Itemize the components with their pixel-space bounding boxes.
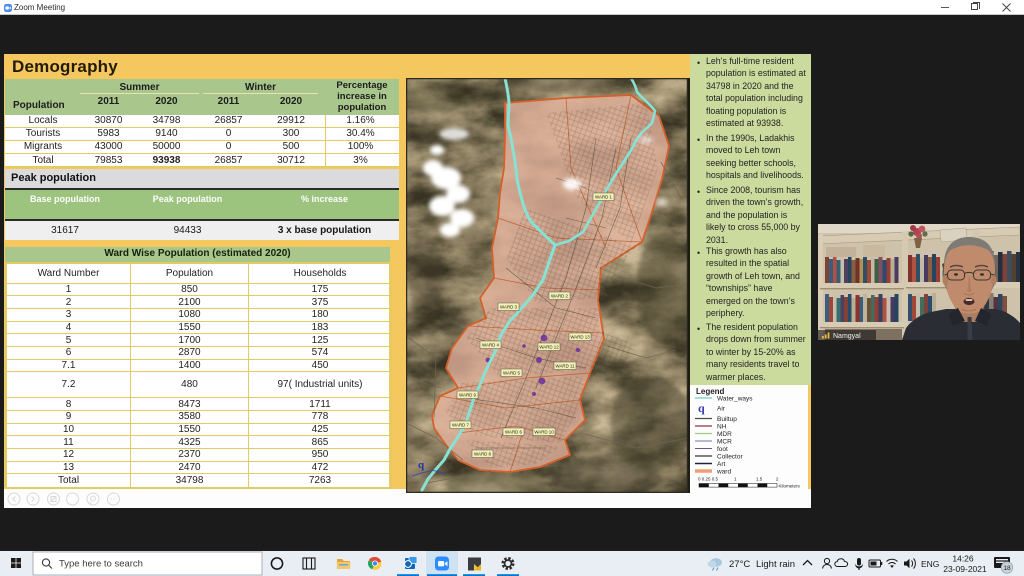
svg-text:2: 2 <box>776 477 779 482</box>
svg-text:Air: Air <box>717 406 726 413</box>
svg-text:MDR: MDR <box>717 431 732 438</box>
svg-text:WARD 2: WARD 2 <box>551 294 568 299</box>
svg-text:WARD 3: WARD 3 <box>500 305 517 310</box>
svg-text:WARD 8: WARD 8 <box>474 452 491 457</box>
svg-text:WARD 5: WARD 5 <box>503 371 520 376</box>
svg-text:ENG: ENG <box>921 559 939 569</box>
svg-text:WARD 9: WARD 9 <box>459 393 476 398</box>
svg-text:Type here to search: Type here to search <box>59 559 143 570</box>
svg-text:q: q <box>698 401 705 415</box>
svg-text:Builtup: Builtup <box>717 416 737 423</box>
svg-text:27°C: 27°C <box>729 559 750 570</box>
svg-text:MCR: MCR <box>717 439 732 446</box>
svg-text:WARD 1: WARD 1 <box>595 195 612 200</box>
svg-text:WARD 10: WARD 10 <box>534 430 554 435</box>
svg-text:WARD 7: WARD 7 <box>452 423 469 428</box>
svg-text:WARD 6: WARD 6 <box>505 430 522 435</box>
svg-text:Collector: Collector <box>717 454 743 461</box>
svg-text:18: 18 <box>1003 565 1011 572</box>
svg-text:Art: Art <box>717 461 726 468</box>
svg-text:23-09-2021: 23-09-2021 <box>943 564 987 574</box>
svg-text:WARD 12: WARD 12 <box>539 345 559 350</box>
svg-text:WARD 4: WARD 4 <box>482 343 499 348</box>
svg-text:q: q <box>418 459 425 471</box>
svg-text:Namgyal: Namgyal <box>833 333 861 340</box>
svg-text:ward: ward <box>716 469 731 476</box>
svg-text:WARD 11: WARD 11 <box>555 364 575 369</box>
svg-text:Light rain: Light rain <box>756 559 795 570</box>
svg-text:WARD 13: WARD 13 <box>570 335 590 340</box>
svg-text:1: 1 <box>734 477 737 482</box>
svg-text:1.5: 1.5 <box>756 477 763 482</box>
svg-text:NH: NH <box>717 424 727 431</box>
svg-text:0 0.25 0.5: 0 0.25 0.5 <box>698 477 719 482</box>
svg-text:Kilometers: Kilometers <box>779 484 801 489</box>
svg-text:14:26: 14:26 <box>952 554 974 564</box>
svg-text:foot: foot <box>717 446 728 453</box>
svg-text:Water_ways: Water_ways <box>717 396 753 403</box>
